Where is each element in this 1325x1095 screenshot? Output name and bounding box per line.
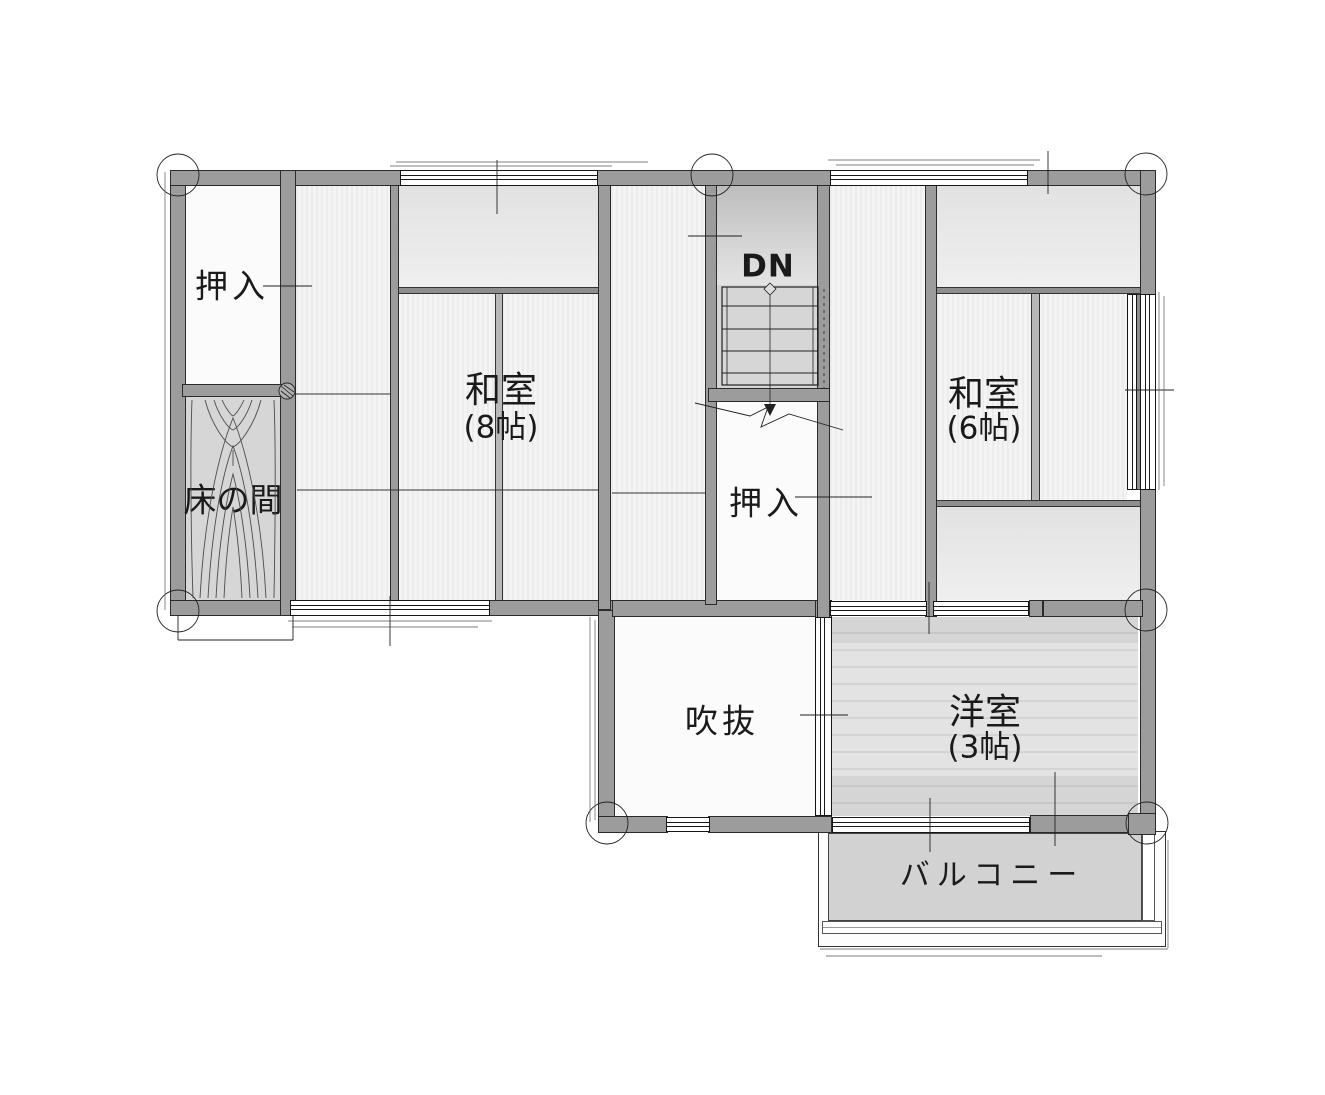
wall-outer-bottom-b (488, 600, 614, 616)
wall-outer-right-b (1140, 488, 1156, 833)
wall-closet-right (280, 170, 296, 616)
label-western-size: (3帖) (948, 733, 1023, 764)
balcony-rail-right (1142, 833, 1155, 921)
wall-ext-bottom-a (598, 816, 668, 833)
wall-outer-top-b (596, 170, 832, 186)
western-room-shade-top (832, 617, 1138, 643)
label-stairs-dn: DN (741, 252, 795, 283)
washitsu6-band-line (927, 287, 1143, 294)
label-atrium-void: 吹抜 (685, 705, 759, 738)
wall-outer-right-a (1140, 170, 1156, 296)
balcony-rail-bottom (822, 921, 1162, 934)
wall-washitsu8-left (390, 185, 399, 605)
partition-void-western (815, 617, 832, 816)
window-bottom-west (290, 600, 490, 616)
washitsu6-bottom-mat (937, 507, 1140, 600)
door-balcony (832, 817, 1030, 833)
label-washitsu8-size: (8帖) (464, 413, 539, 444)
wall-ext-bottom-b (708, 816, 832, 833)
label-closet-top-left: 押入 (195, 270, 269, 303)
window-top-west (400, 170, 598, 186)
label-closet-center: 押入 (729, 487, 803, 520)
wall-outer-top-c (1026, 170, 1156, 186)
washitsu8-mat-divider (495, 294, 503, 600)
washitsu6-band-line2 (932, 500, 1143, 507)
opening-washitsu6-to-western (933, 601, 1029, 616)
window-right-outer (1140, 294, 1156, 490)
wall-stair-landing-bar (708, 388, 830, 402)
washitsu8-band-line (392, 287, 610, 294)
corridor-strip-left (296, 186, 390, 600)
floor-plan: 押入 床の間 和室 (8帖) DN 押入 和室 (6帖) 吹抜 洋室 (3帖) … (0, 0, 1325, 1095)
door-corridor-to-western (830, 601, 927, 616)
window-void-bottom (666, 817, 710, 832)
wall-ext-corner-block (1128, 813, 1156, 835)
washitsu6-mat-divider (1031, 294, 1040, 502)
wall-ext-bottom-c (1030, 815, 1142, 833)
wall-void-left (598, 610, 615, 833)
wall-washitsu8-right (598, 185, 611, 610)
window-right-inner (1127, 294, 1137, 490)
wall-closet-tokonoma-divider (182, 384, 282, 397)
corridor-strip-right (830, 186, 925, 600)
western-room-shade-bottom (832, 776, 1138, 816)
label-washitsu6-size: (6帖) (947, 414, 1022, 445)
wall-south-east (1043, 600, 1143, 617)
label-tokonoma: 床の間 (184, 484, 283, 517)
wall-washitsu6-left (925, 185, 937, 617)
washitsu6-top-mat (937, 186, 1140, 287)
corridor-strip-center (611, 186, 705, 600)
wall-outer-bottom-a (170, 600, 292, 616)
label-washitsu8-name: 和室 (465, 373, 537, 409)
label-western-name: 洋室 (949, 695, 1021, 731)
washitsu8-top-mat (397, 186, 599, 287)
wall-block-south-mid (1029, 600, 1043, 617)
stairwell-floor (717, 285, 817, 388)
label-balcony: バルコニー (900, 861, 1084, 891)
window-top-east (830, 170, 1028, 186)
label-washitsu6-name: 和室 (948, 377, 1020, 413)
